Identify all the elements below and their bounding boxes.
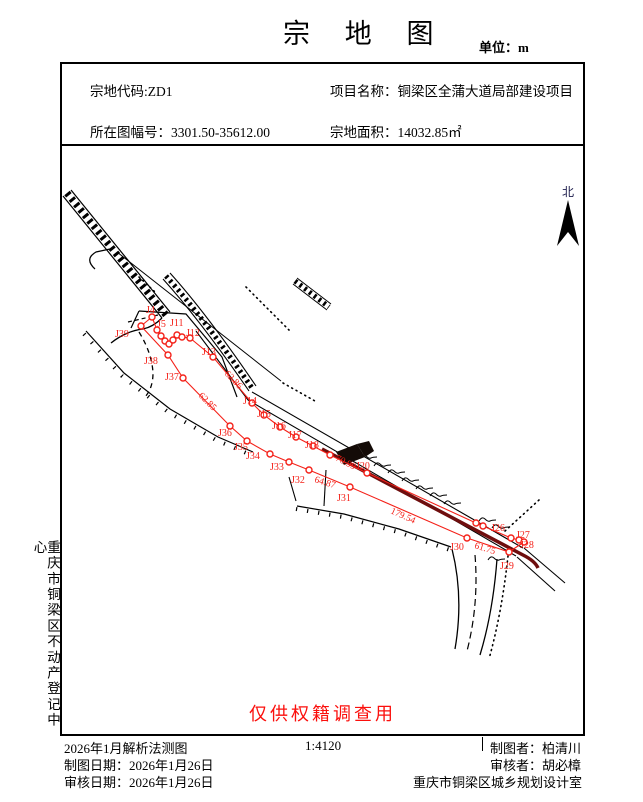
point-label: J32 (291, 475, 305, 486)
boundary-point (508, 535, 514, 541)
north-arrow: 北 (557, 185, 579, 246)
review-date: 审核日期：2026年1月26日 (64, 772, 214, 791)
boundary-point (165, 352, 171, 358)
point-label: J15 (257, 409, 271, 420)
boundary-point (138, 323, 144, 329)
map-scale: 1:4120 (305, 738, 341, 754)
boundary-point (267, 451, 273, 457)
distance-label: 61.75 (473, 541, 497, 557)
parcel-map: 北 J4J5J11J12J13J14J15J16J17J18J20J26J27J… (0, 0, 643, 802)
point-label: J31 (337, 493, 351, 504)
point-label: J28 (520, 540, 534, 551)
point-label: J38 (144, 356, 158, 367)
boundary-point (179, 334, 185, 340)
point-label: J5 (157, 319, 166, 330)
point-label: J35 (234, 442, 248, 453)
watermark-text: 仅供权籍调查用 (60, 700, 585, 726)
road-linework (63, 190, 565, 659)
point-label: J37 (165, 372, 179, 383)
boundary-point (286, 459, 292, 465)
boundary-point (306, 467, 312, 473)
point-label: J18 (305, 440, 319, 451)
point-label: J14 (243, 396, 257, 407)
point-label: J36 (218, 428, 232, 439)
point-label: J26 (491, 523, 505, 534)
point-label: J12 (186, 328, 200, 339)
point-label: J17 (288, 430, 302, 441)
boundary-point (506, 549, 512, 555)
boundary-point (327, 452, 333, 458)
point-label: J30 (450, 542, 464, 553)
distance-label: 62.86 (222, 369, 244, 392)
point-label: J16 (272, 421, 286, 432)
registration-center-label: 重庆市铜梁区不动产登记中心 (32, 540, 59, 740)
parcel-boundary-layer: J4J5J11J12J13J14J15J16J17J18J20J26J27J28… (115, 305, 534, 572)
point-label: J4 (146, 305, 155, 316)
boundary-point (464, 535, 470, 541)
point-label: J11 (170, 318, 184, 329)
north-label: 北 (562, 185, 574, 199)
boundary-point (480, 523, 486, 529)
point-label: J29 (500, 561, 514, 572)
design-office: 重庆市铜梁区城乡规划设计室 (413, 772, 582, 791)
point-label: J34 (246, 451, 260, 462)
point-label: J33 (270, 462, 284, 473)
point-label: J20 (356, 461, 370, 472)
boundary-point (180, 375, 186, 381)
point-label: J39 (115, 329, 129, 340)
boundary-point (347, 484, 353, 490)
boundary-point (473, 520, 479, 526)
point-label: J13 (202, 347, 216, 358)
footer-divider (482, 737, 483, 751)
